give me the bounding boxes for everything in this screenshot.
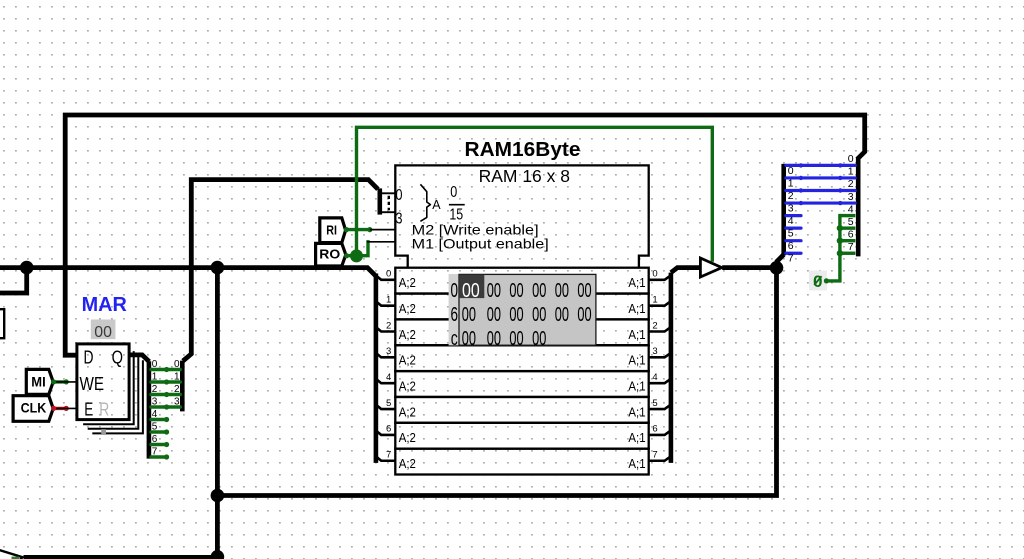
svg-text:6: 6 [450,304,458,326]
svg-text:2: 2 [386,320,391,331]
svg-text:4: 4 [652,372,657,383]
svg-text:0: 0 [152,359,158,370]
svg-text:1: 1 [652,294,657,305]
svg-text:A;2: A;2 [399,327,416,342]
svg-text:00: 00 [532,280,546,302]
svg-text:1: 1 [848,166,854,178]
svg-text:7: 7 [788,253,794,265]
svg-text:A;1: A;1 [628,275,645,290]
svg-text:MI: MI [31,375,45,390]
svg-text:1: 1 [386,294,391,305]
svg-text:A;2: A;2 [399,430,416,445]
svg-text:3: 3 [174,396,180,407]
svg-text:0: 0 [386,269,391,280]
svg-text:00: 00 [577,304,591,326]
svg-text:c: c [451,328,458,350]
svg-text:3: 3 [652,346,657,357]
svg-text:3: 3 [788,202,794,214]
svg-text:7: 7 [652,450,657,461]
svg-text:A;1: A;1 [628,430,645,445]
svg-text:A;1: A;1 [628,327,645,342]
svg-text:0: 0 [450,280,458,302]
svg-text:6: 6 [788,240,794,252]
svg-text:00: 00 [509,304,523,326]
svg-text:00: 00 [94,324,112,341]
svg-text:00: 00 [487,304,501,326]
svg-text:5: 5 [788,228,794,240]
svg-text:3: 3 [396,210,403,227]
svg-text:00: 00 [462,328,476,350]
svg-text:MAR: MAR [82,294,128,316]
svg-text:3: 3 [848,191,854,203]
svg-text:6: 6 [386,424,391,435]
svg-text:M1 [Output enable]: M1 [Output enable] [412,236,549,252]
svg-text:A: A [432,198,441,212]
svg-text:00: 00 [577,280,591,302]
svg-text:0: 0 [396,187,403,204]
svg-text:WE: WE [80,374,105,394]
svg-text:00: 00 [509,280,523,302]
svg-text:A;1: A;1 [628,353,645,368]
svg-text:Q: Q [112,348,123,368]
svg-text:5: 5 [652,398,657,409]
svg-text:0: 0 [788,165,794,177]
svg-text:5: 5 [848,216,854,228]
svg-text:RAM16Byte: RAM16Byte [465,139,581,161]
svg-text:6: 6 [652,424,657,435]
svg-text:R: R [99,400,109,420]
svg-text:4: 4 [788,215,794,227]
svg-text:A;2: A;2 [399,404,416,419]
svg-text:6: 6 [152,434,158,445]
svg-text:00: 00 [487,280,501,302]
svg-text:A;2: A;2 [399,275,416,290]
svg-text:CLK: CLK [21,400,47,416]
svg-text:4: 4 [386,372,391,383]
svg-text:D: D [84,348,94,368]
svg-text:00: 00 [509,328,523,350]
svg-text:A;2: A;2 [399,301,416,316]
svg-text:RI: RI [326,222,337,237]
svg-text:1: 1 [152,371,158,382]
svg-text:RO: RO [319,247,340,262]
svg-text:A;1: A;1 [628,456,645,471]
svg-text:A;1: A;1 [628,404,645,419]
svg-text:E: E [84,400,93,420]
svg-text:2: 2 [652,320,657,331]
svg-text:A;1: A;1 [628,301,645,316]
svg-text:2: 2 [174,384,180,395]
svg-text:2: 2 [788,190,794,202]
svg-text:7: 7 [386,450,391,461]
svg-text:0: 0 [652,269,657,280]
svg-text:5: 5 [386,398,391,409]
svg-text:0: 0 [848,153,854,165]
svg-text:1: 1 [174,371,180,382]
svg-text:2: 2 [848,178,854,190]
svg-text:00: 00 [555,304,569,326]
svg-text:7: 7 [848,241,854,253]
svg-text:2: 2 [152,384,158,395]
svg-text:0: 0 [174,359,180,370]
svg-text:A;2: A;2 [399,379,416,394]
svg-text:3: 3 [386,346,391,357]
svg-text:00: 00 [532,304,546,326]
svg-text:A;1: A;1 [628,379,645,394]
svg-text:1: 1 [788,177,794,189]
svg-text:6: 6 [848,228,854,240]
svg-text:7: 7 [152,446,158,457]
svg-text:0: 0 [450,184,457,201]
svg-text:5: 5 [152,421,158,432]
svg-text:00: 00 [462,304,476,326]
svg-text:4: 4 [152,409,158,420]
svg-text:00: 00 [555,280,569,302]
svg-text:4: 4 [848,203,854,215]
svg-text:A;2: A;2 [399,456,416,471]
svg-text:3: 3 [152,396,158,407]
svg-text:A;2: A;2 [399,353,416,368]
svg-text:RAM 16 x 8: RAM 16 x 8 [479,166,570,186]
svg-text:00: 00 [462,280,480,302]
svg-text:00: 00 [487,328,501,350]
svg-text:00: 00 [532,328,546,350]
